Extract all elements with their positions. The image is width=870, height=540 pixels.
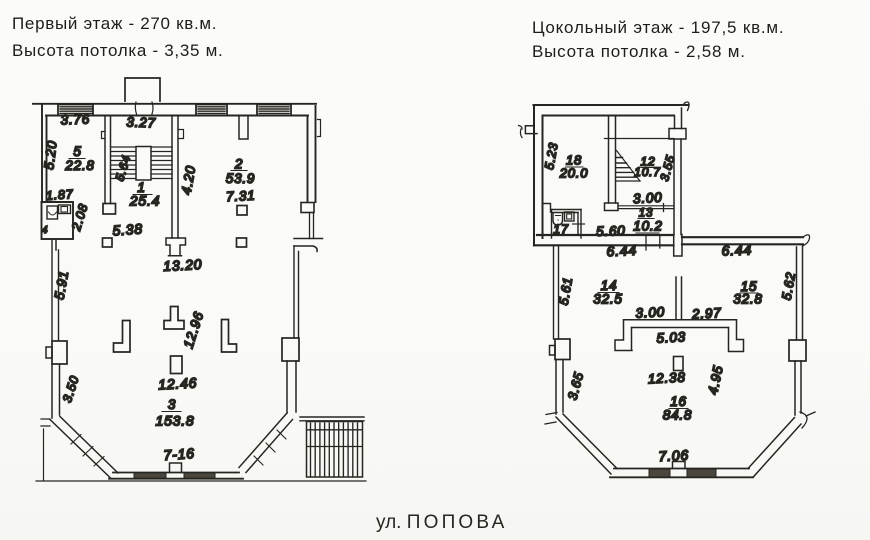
svg-text:32.8: 32.8 bbox=[733, 292, 762, 307]
svg-text:13.20: 13.20 bbox=[163, 256, 203, 274]
svg-text:6.44: 6.44 bbox=[606, 242, 637, 260]
svg-text:3.00: 3.00 bbox=[635, 304, 665, 321]
svg-text:3.76: 3.76 bbox=[60, 111, 90, 127]
svg-text:84.8: 84.8 bbox=[663, 408, 692, 423]
svg-text:3.65: 3.65 bbox=[565, 370, 587, 401]
svg-text:25.4: 25.4 bbox=[129, 193, 160, 209]
svg-text:1.87: 1.87 bbox=[46, 187, 75, 203]
svg-text:4.20: 4.20 bbox=[179, 164, 199, 196]
svg-text:2.97: 2.97 bbox=[691, 305, 722, 322]
svg-text:12.38: 12.38 bbox=[647, 370, 686, 387]
svg-text:5.03: 5.03 bbox=[656, 329, 686, 346]
svg-text:5.38: 5.38 bbox=[112, 220, 143, 238]
svg-text:32.5: 32.5 bbox=[593, 292, 622, 307]
svg-text:53.9: 53.9 bbox=[226, 171, 255, 186]
svg-text:4: 4 bbox=[42, 225, 48, 236]
svg-text:6.44: 6.44 bbox=[721, 241, 752, 258]
svg-text:3.00: 3.00 bbox=[633, 190, 663, 207]
svg-text:2: 2 bbox=[234, 157, 243, 172]
svg-text:4.95: 4.95 bbox=[705, 364, 726, 396]
svg-text:5: 5 bbox=[73, 144, 81, 159]
svg-text:7.31: 7.31 bbox=[226, 188, 256, 205]
svg-text:3: 3 bbox=[168, 397, 176, 412]
svg-text:10.2: 10.2 bbox=[633, 219, 662, 234]
svg-text:5.62: 5.62 bbox=[779, 271, 799, 302]
svg-text:20.0: 20.0 bbox=[559, 166, 589, 181]
svg-text:22.8: 22.8 bbox=[64, 158, 94, 173]
svg-text:5.60: 5.60 bbox=[596, 223, 626, 239]
svg-text:5.23: 5.23 bbox=[542, 141, 561, 171]
svg-text:5.20: 5.20 bbox=[41, 139, 59, 170]
svg-text:153.8: 153.8 bbox=[155, 413, 194, 429]
svg-text:5.91: 5.91 bbox=[52, 269, 72, 301]
svg-text:3.27: 3.27 bbox=[126, 114, 156, 130]
svg-text:12.46: 12.46 bbox=[158, 374, 198, 392]
svg-text:7.06: 7.06 bbox=[658, 447, 689, 465]
svg-text:3.50: 3.50 bbox=[60, 374, 82, 405]
svg-text:7-16: 7-16 bbox=[163, 445, 195, 463]
